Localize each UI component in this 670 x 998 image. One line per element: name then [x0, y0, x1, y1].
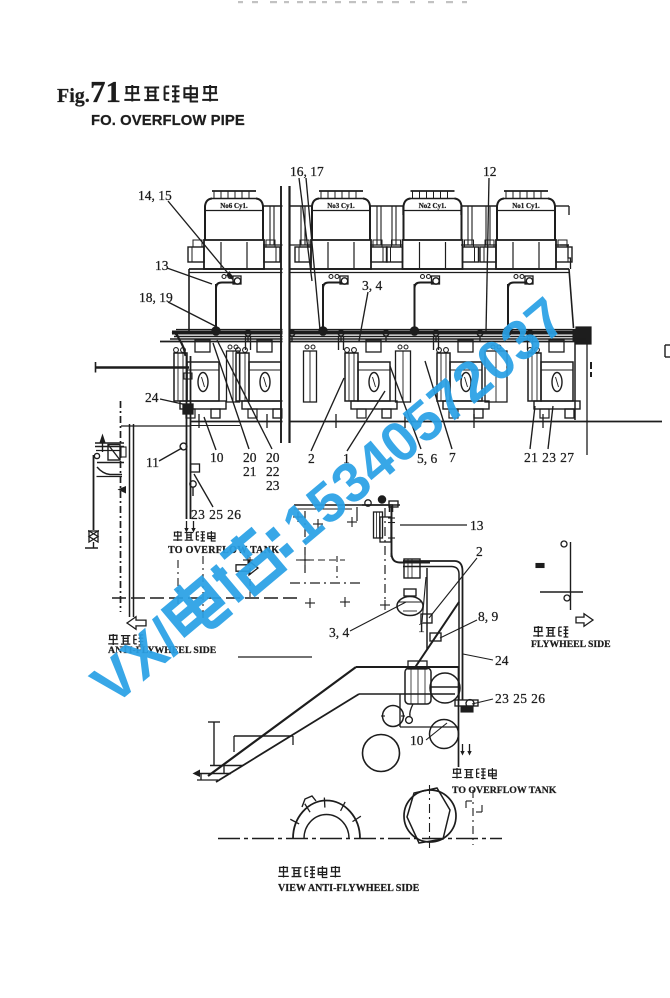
svg-text:24: 24 [145, 390, 159, 405]
svg-text:Fig.: Fig. [57, 85, 90, 107]
svg-text:24: 24 [495, 653, 509, 668]
svg-text:3, 4: 3, 4 [329, 625, 350, 640]
svg-text:12: 12 [483, 164, 497, 179]
svg-text:20: 20 [243, 450, 257, 465]
svg-text:14, 15: 14, 15 [138, 188, 172, 203]
svg-text:10: 10 [210, 450, 224, 465]
svg-text:No2 Cy1.: No2 Cy1. [419, 202, 447, 210]
svg-text:22: 22 [266, 464, 280, 479]
svg-text:10: 10 [410, 733, 424, 748]
svg-text:No3 Cy1.: No3 Cy1. [327, 202, 355, 210]
svg-text:13: 13 [470, 518, 484, 533]
svg-text:21: 21 [243, 464, 257, 479]
svg-text:No6 Cy1.: No6 Cy1. [220, 202, 248, 210]
svg-text:No1 Cy1.: No1 Cy1. [512, 202, 540, 210]
svg-text:8, 9: 8, 9 [478, 609, 499, 624]
svg-text:23 25 26: 23 25 26 [191, 507, 241, 522]
svg-text:23 25 26: 23 25 26 [495, 691, 545, 706]
svg-text:21 23 27: 21 23 27 [524, 450, 574, 465]
svg-text:2: 2 [476, 544, 483, 559]
svg-text:1: 1 [418, 620, 425, 635]
svg-text:71: 71 [90, 74, 121, 109]
svg-text:VIEW ANTI-FLYWHEEL SIDE: VIEW ANTI-FLYWHEEL SIDE [278, 883, 420, 894]
svg-text:2: 2 [308, 451, 315, 466]
svg-text:11: 11 [146, 455, 159, 470]
svg-text:3, 4: 3, 4 [362, 278, 383, 293]
svg-text:23: 23 [266, 478, 280, 493]
svg-text:7: 7 [449, 450, 456, 465]
svg-text:TO OVERFLOW TANK: TO OVERFLOW TANK [452, 785, 557, 796]
svg-text:16, 17: 16, 17 [290, 164, 324, 179]
svg-text:FO. OVERFLOW PIPE: FO. OVERFLOW PIPE [91, 113, 245, 129]
svg-text:FLYWHEEL SIDE: FLYWHEEL SIDE [531, 639, 611, 650]
svg-text:20: 20 [266, 450, 280, 465]
svg-text:18, 19: 18, 19 [139, 290, 173, 305]
svg-text:13: 13 [155, 258, 169, 273]
